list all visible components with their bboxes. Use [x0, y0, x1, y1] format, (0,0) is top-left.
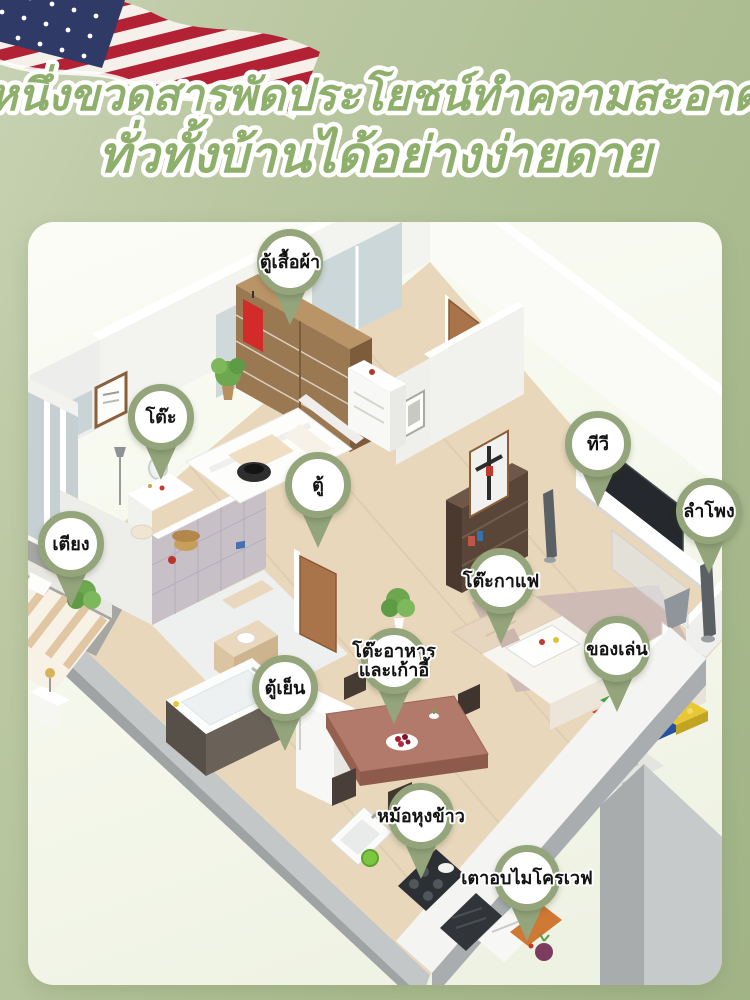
- pin-circle: หม้อหุงข้าว: [388, 783, 454, 849]
- pin-tv: ทีวี: [565, 411, 631, 477]
- green-gadget: [362, 850, 378, 866]
- pin-coffee-table: โต๊ะกาแฟ: [468, 548, 534, 614]
- pin-cabinet: ตู้: [285, 452, 351, 518]
- pin-label: ตู้เย็น: [265, 679, 306, 698]
- pin-circle: ตู้เย็น: [252, 655, 318, 721]
- pin-label: ของเล่น: [586, 640, 647, 659]
- pin-rice-cooker: หม้อหุงข้าว: [388, 783, 454, 849]
- pin-label: ทีวี: [587, 435, 609, 454]
- pin-label: ตู้เสื้อผ้า: [260, 253, 320, 272]
- pin-wardrobe: ตู้เสื้อผ้า: [257, 229, 323, 295]
- pin-circle: ของเล่น: [584, 616, 650, 682]
- pin-circle: เตียง: [38, 511, 104, 577]
- pin-label: ลำโพง: [683, 502, 734, 521]
- pin-label: หม้อหุงข้าว: [377, 807, 465, 826]
- pin-circle: ตู้: [285, 452, 351, 518]
- pin-fridge: ตู้เย็น: [252, 655, 318, 721]
- pin-circle: โต๊ะ: [128, 384, 194, 450]
- pin-label: เตียง: [52, 535, 89, 554]
- end-wall-column: [600, 764, 722, 985]
- pin-circle: ตู้เสื้อผ้า: [257, 229, 323, 295]
- pin-circle: ลำโพง: [676, 478, 742, 544]
- page-title: หนึ่งขวดสารพัดประโยชน์ทำความสะอาด ทั่วทั…: [0, 0, 750, 210]
- pin-label: ตู้: [312, 476, 324, 495]
- pin-label: โต๊ะ: [145, 408, 176, 427]
- pin-circle: ทีวี: [565, 411, 631, 477]
- headline-line1: หนึ่งขวดสารพัดประโยชน์ทำความสะอาด: [0, 64, 750, 120]
- pin-microwave: เตาอบไมโครเวฟ: [494, 845, 560, 911]
- apartment-floorplan: [28, 222, 722, 985]
- pin-circle: โต๊ะกาแฟ: [468, 548, 534, 614]
- pin-circle: โต๊ะอาหาร และเก้าอี้: [361, 628, 427, 694]
- content-card: [28, 222, 722, 985]
- pin-label: โต๊ะอาหาร และเก้าอี้: [352, 642, 436, 680]
- floor-lamp: [114, 447, 126, 457]
- headline-line2: ทั่วทั้งบ้านได้อย่างง่ายดาย: [98, 118, 656, 183]
- pin-bed: เตียง: [38, 511, 104, 577]
- pin-dining-table-chairs: โต๊ะอาหาร และเก้าอี้: [361, 628, 427, 694]
- pin-circle: เตาอบไมโครเวฟ: [494, 845, 560, 911]
- pin-speaker: ลำโพง: [676, 478, 742, 544]
- pin-label: เตาอบไมโครเวฟ: [461, 869, 592, 888]
- pin-label: โต๊ะกาแฟ: [463, 572, 539, 591]
- pin-table: โต๊ะ: [128, 384, 194, 450]
- pin-toys: ของเล่น: [584, 616, 650, 682]
- stool: [131, 525, 153, 539]
- promo-page: { "page": { "background_color": "#aebf93…: [0, 0, 750, 1000]
